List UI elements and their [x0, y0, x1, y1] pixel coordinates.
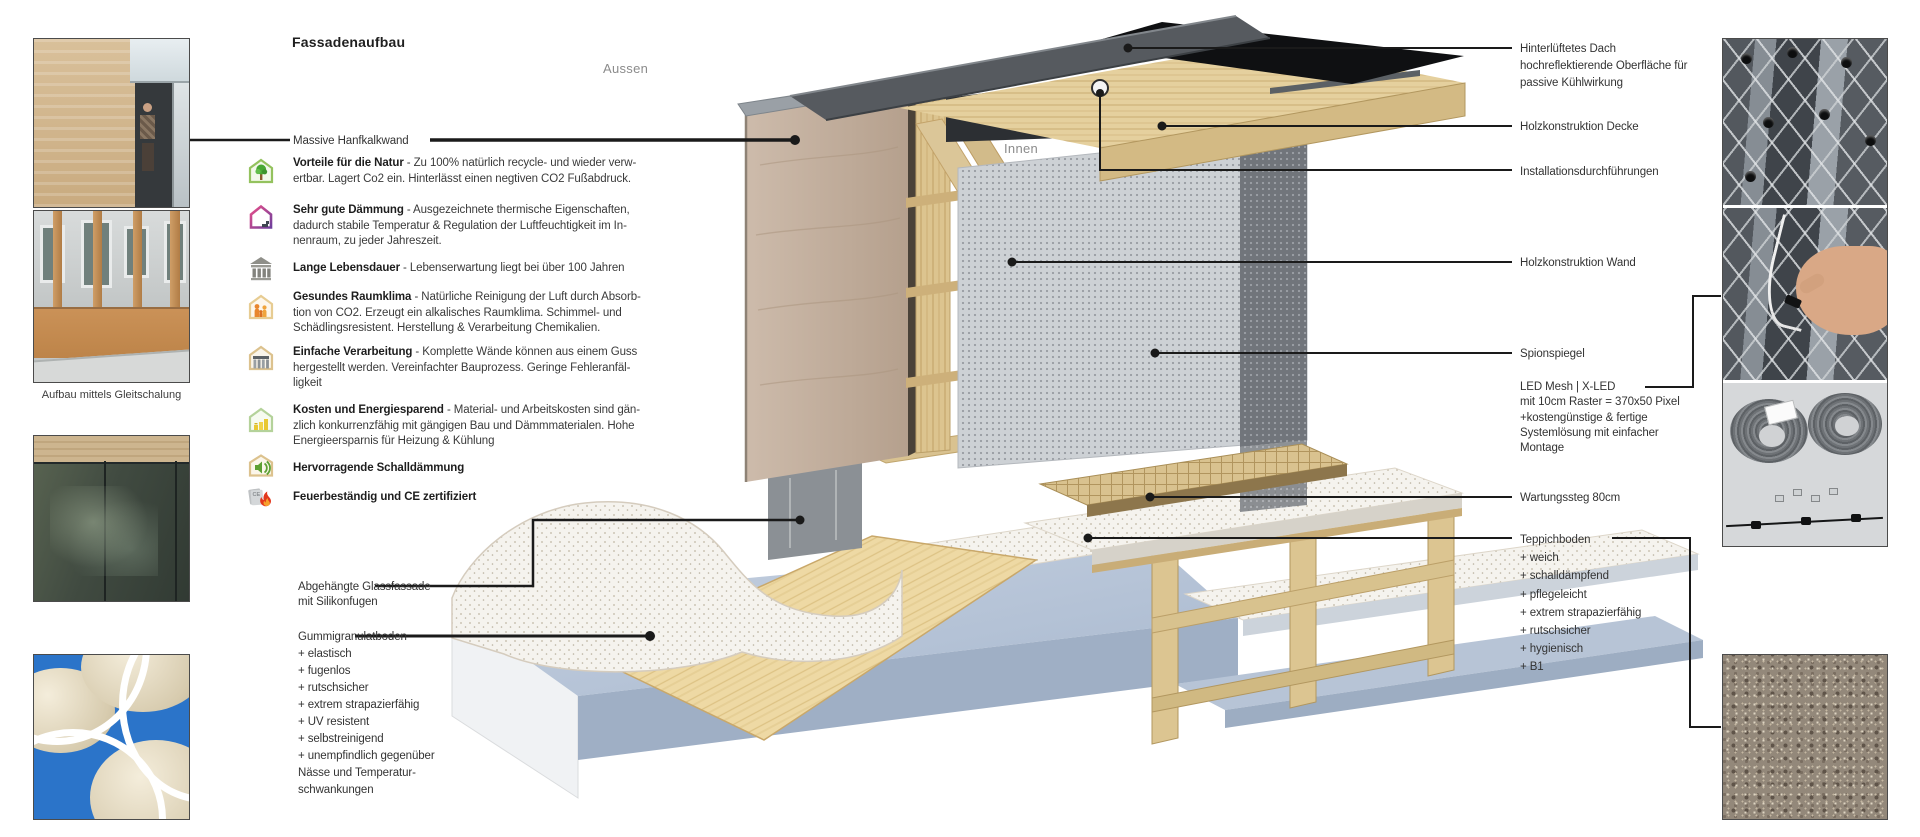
person-head [143, 103, 152, 112]
benefit-line: tion von CO2. Erzeugt ein alkalisches Ra… [293, 306, 663, 322]
benefit-line: ertbar. Lagert Co2 ein. Hinterlässt eine… [293, 172, 663, 188]
label-line: Teppichboden [1520, 531, 1720, 549]
label-line: Hinterlüftetes Dach [1520, 41, 1720, 58]
led-node [1819, 109, 1830, 120]
photo-caption: Aufbau mittels Gleitschalung [33, 389, 190, 401]
cable-node [1851, 514, 1861, 522]
person-legs [142, 143, 154, 171]
label-line: Holzkonstruktion Wand [1520, 255, 1720, 271]
label-maintenance-walkway: Wartungssteg 80cm [1520, 490, 1720, 506]
metal-clip [1811, 495, 1820, 502]
photo-hand-mounting-cable [1723, 208, 1887, 380]
label-timber-ceiling: Holzkonstruktion Decke [1520, 119, 1720, 135]
benefit-line: dadurch stabile Temperatur & Regulation … [293, 219, 663, 235]
photo-hemp-wall-building [33, 38, 190, 208]
label-carpet-floor: Teppichboden+ weich+ schalldämpfend+ pfl… [1520, 531, 1720, 677]
label-line: Systemlösung mit einfacher [1520, 426, 1720, 441]
label-line: passive Kühlwirkung [1520, 75, 1720, 92]
label-line: + pflegeleicht [1520, 586, 1720, 604]
label-line: + schalldämpfend [1520, 567, 1720, 585]
label-line: Wartungssteg 80cm [1520, 490, 1720, 506]
benefit-item: Lange Lebensdauer - Lebenserwartung lieg… [293, 261, 663, 277]
label-rubber-floor: Gummigranulatboden+ elastisch+ fugenlos+… [298, 629, 435, 799]
benefit-line: nenraum, zu jeder Jahreszeit. [293, 234, 663, 250]
label-line: mit Silikonfugen [298, 595, 431, 610]
benefit-line: Feuerbeständig und CE zertifiziert [293, 490, 663, 506]
label-line: + weich [1520, 549, 1720, 567]
label-line: + unempfindlich gegenüber [298, 748, 435, 765]
led-node [1741, 53, 1752, 64]
fire-resistant-icon: CE [247, 484, 275, 509]
cost-saving-icon [247, 406, 275, 434]
label-line: LED Mesh | X-LED [1520, 380, 1720, 395]
label-line: hochreflektierende Oberfläche für [1520, 58, 1720, 75]
led-node [1865, 135, 1876, 146]
led-node [1745, 171, 1756, 182]
label-led-mesh: LED Mesh | X-LEDmit 10cm Raster = 370x50… [1520, 380, 1720, 456]
benefit-item: Einfache Verarbeitung - Komplette Wände … [293, 345, 663, 392]
label-line: Installationsdurchführungen [1520, 164, 1720, 180]
leader-led-mesh [1645, 296, 1721, 387]
label-line: + extrem strapazierfähig [298, 697, 435, 714]
photo-carpet-texture [1722, 654, 1888, 820]
person-body [140, 115, 155, 139]
label-hemp-wall: Massive Hanfkalkwand [293, 134, 409, 149]
label-line: + extrem strapazierfähig [1520, 604, 1720, 622]
glass-reflection [50, 486, 159, 577]
benefit-item: Hervorragende Schalldämmung [293, 461, 663, 477]
benefit-line: Lange Lebensdauer - Lebenserwartung lieg… [293, 261, 663, 277]
hemp-wall-face [746, 86, 908, 482]
label-line: Abgehängte Glassfassade [298, 580, 431, 595]
svg-text:CE: CE [253, 492, 261, 498]
benefit-line: Schädlingsresistent. Herstellung & Verar… [293, 321, 663, 337]
label-line: Holzkonstruktion Decke [1520, 119, 1720, 135]
benefit-item: Gesundes Raumklima - Natürliche Reinigun… [293, 290, 663, 337]
label-line: + rutschsicher [298, 680, 435, 697]
label-line: mit 10cm Raster = 370x50 Pixel [1520, 395, 1720, 410]
cable-node [1751, 521, 1761, 529]
photo-sliding-formwork [33, 210, 190, 383]
benefit-line: Hervorragende Schalldämmung [293, 461, 663, 477]
label-service-penetrations: Installationsdurchführungen [1520, 164, 1720, 180]
label-line: Montage [1520, 441, 1720, 456]
benefit-item: Vorteile für die Natur - Zu 100% natürli… [293, 156, 663, 187]
benefit-line: Einfache Verarbeitung - Komplette Wände … [293, 345, 663, 361]
label-one-way-mirror: Spionspiegel [1520, 346, 1720, 362]
wood-soffit [34, 436, 189, 464]
zone-label-outside: Aussen [603, 61, 648, 76]
cable-node [1801, 517, 1811, 525]
insulation-house-icon [247, 203, 275, 231]
photo-mesh-spools [1723, 383, 1887, 546]
right-photo-stack [1722, 38, 1888, 547]
led-node [1787, 47, 1798, 58]
glass-mullion [175, 461, 177, 601]
photo-blue-rubber-floor [33, 654, 190, 820]
benefit-line: hergestellt werden. Vereinfachter Baupro… [293, 361, 663, 377]
label-timber-wall: Holzkonstruktion Wand [1520, 255, 1720, 271]
label-line: Nässe und Temperatur- [298, 765, 435, 782]
led-node [1763, 117, 1774, 128]
label-ventilated-roof: Hinterlüftetes Dachhochreflektierende Ob… [1520, 41, 1720, 92]
benefit-line: Gesundes Raumklima - Natürliche Reinigun… [293, 290, 663, 306]
benefit-line: Kosten und Energiesparend - Material- un… [293, 403, 663, 419]
label-line: Gummigranulatboden [298, 629, 435, 646]
label-line: schwankungen [298, 782, 435, 799]
benefit-item: Feuerbeständig und CE zertifiziert [293, 490, 663, 506]
benefit-line: ligkeit [293, 376, 663, 392]
benefit-line: Vorteile für die Natur - Zu 100% natürli… [293, 156, 663, 172]
label-line: + B1 [1520, 658, 1720, 676]
nature-house-icon [247, 157, 275, 185]
label-line: + fugenlos [298, 663, 435, 680]
label-line: + hygienisch [1520, 640, 1720, 658]
door-panel [172, 83, 189, 207]
metal-clip [1829, 488, 1838, 495]
led-node [1841, 57, 1852, 68]
facade-diagram-page: Aufbau mittels Gleitschalung [0, 0, 1920, 837]
benefit-line: Sehr gute Dämmung - Ausgezeichnete therm… [293, 203, 663, 219]
easy-processing-icon [247, 344, 275, 372]
benefit-line: zlich konkurrenzfähig mit gängigen Bau u… [293, 419, 663, 435]
photo-glass-facade [33, 435, 190, 602]
label-line: + rutschsicher [1520, 622, 1720, 640]
spool-hole [1835, 416, 1859, 436]
metal-clip [1793, 489, 1802, 496]
shadow-gap [908, 85, 916, 456]
healthy-climate-family-icon [247, 293, 275, 321]
metal-clip [1775, 495, 1784, 502]
sound-insulation-icon [247, 453, 275, 478]
zone-label-inside: Innen [1004, 141, 1038, 156]
label-line: + UV resistent [298, 714, 435, 731]
label-line: +kostengünstige & fertige [1520, 411, 1720, 426]
benefit-item: Sehr gute Dämmung - Ausgezeichnete therm… [293, 203, 663, 250]
window-band [130, 39, 189, 83]
mesh-screen-shaded [1240, 131, 1307, 447]
benefit-line: Energieersparnis für Heizung & Kühlung [293, 434, 663, 450]
longevity-building-icon [247, 254, 275, 282]
label-line: + elastisch [298, 646, 435, 663]
page-title: Fassadenaufbau [292, 34, 405, 50]
photo-led-mesh-nodes [1723, 39, 1887, 205]
label-glass-facade: Abgehängte Glassfassademit Silikonfugen [298, 580, 431, 610]
label-line: Spionspiegel [1520, 346, 1720, 362]
label-line: + selbstreinigend [298, 731, 435, 748]
benefit-item: Kosten und Energiesparend - Material- un… [293, 403, 663, 450]
timber-post [1152, 544, 1178, 744]
